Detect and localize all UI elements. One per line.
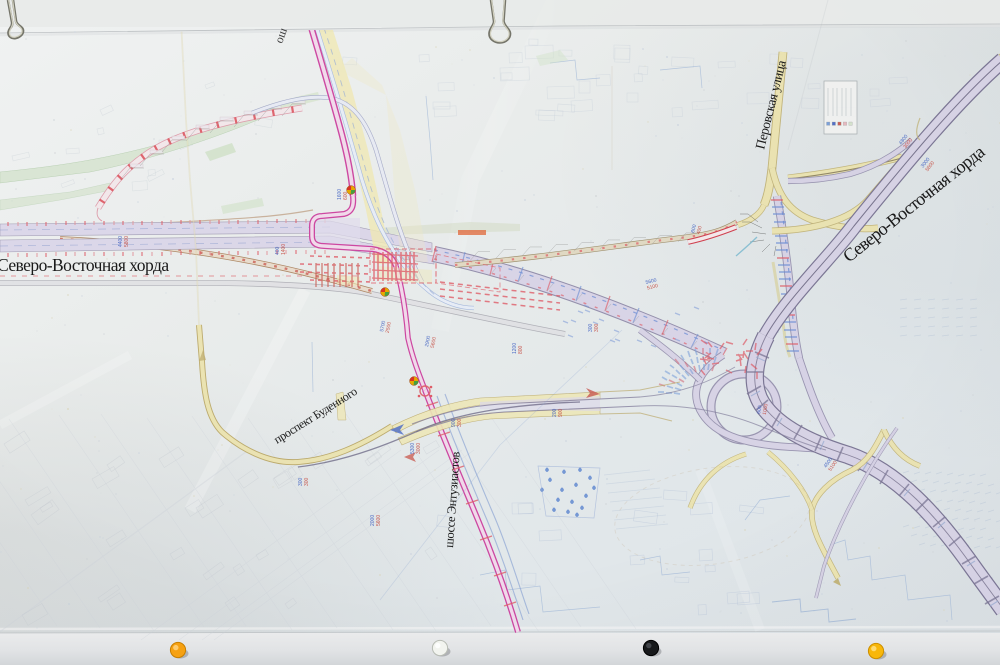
svg-text:300: 300 bbox=[457, 418, 463, 427]
svg-text:Северо-Восточная хорда: Северо-Восточная хорда bbox=[0, 255, 169, 275]
svg-text:5600: 5600 bbox=[376, 515, 382, 526]
svg-text:3000: 3000 bbox=[416, 443, 422, 454]
svg-text:800: 800 bbox=[518, 345, 524, 354]
svg-text:300: 300 bbox=[594, 323, 600, 332]
svg-text:5800: 5800 bbox=[124, 236, 130, 247]
svg-text:300: 300 bbox=[304, 477, 310, 486]
svg-text:900: 900 bbox=[558, 408, 564, 417]
svg-text:1400: 1400 bbox=[281, 244, 287, 255]
